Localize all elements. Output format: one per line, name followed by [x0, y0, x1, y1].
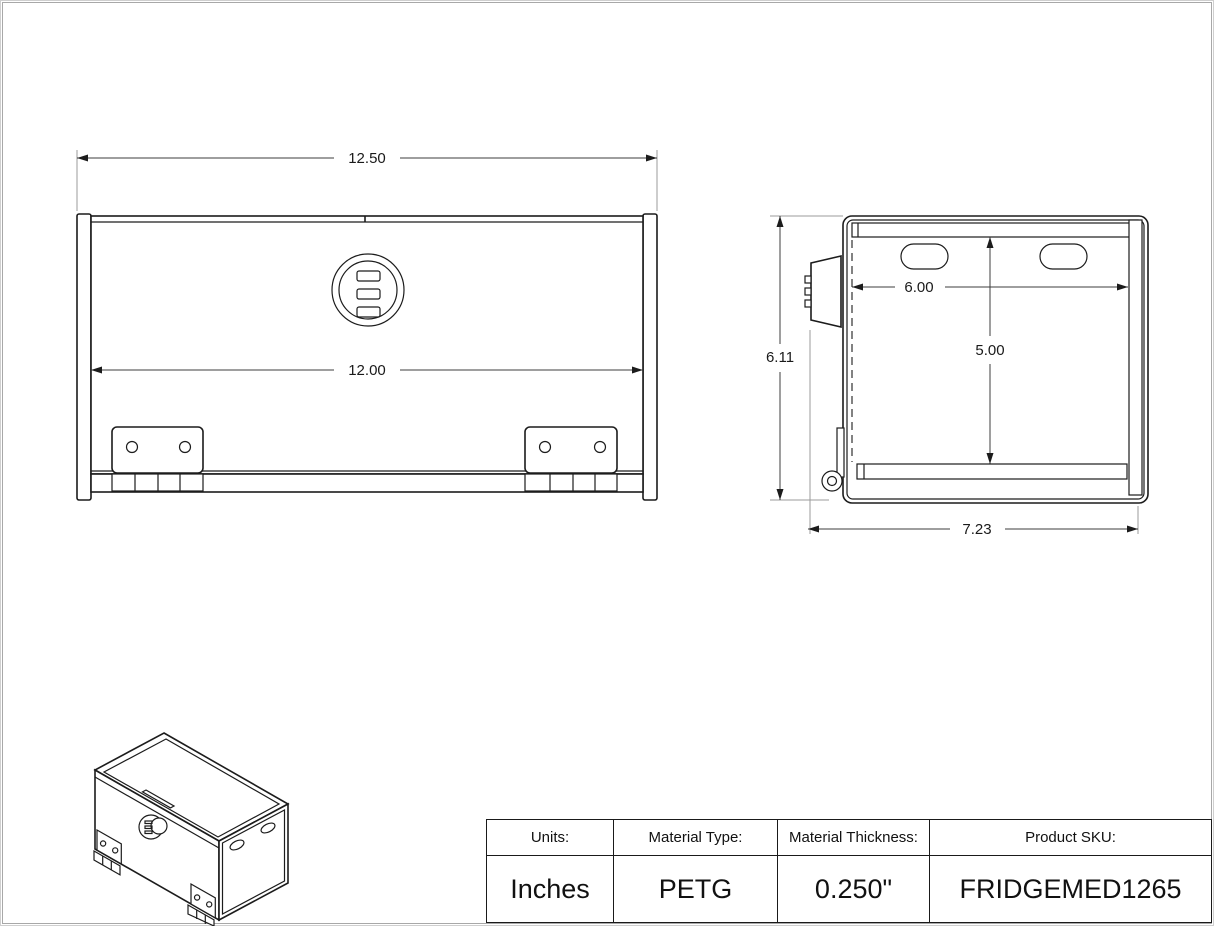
title-block-value-material: PETG — [614, 856, 778, 923]
front-lock — [332, 254, 404, 326]
title-block-header-thickness: Material Thickness: — [778, 820, 930, 856]
side-slot-left — [901, 244, 948, 269]
title-block-header-material: Material Type: — [614, 820, 778, 856]
dim-depth: 7.23 — [808, 521, 1138, 538]
side-bottom-strip — [857, 464, 1127, 479]
drawing-sheet: 12.50 — [0, 0, 1214, 926]
cad-drawing-canvas: 12.50 — [0, 0, 1214, 926]
front-left-rail — [77, 214, 91, 500]
dim-overall-width: 12.50 — [77, 150, 657, 167]
title-block-header-sku: Product SKU: — [930, 820, 1212, 856]
front-view: 12.50 — [77, 150, 657, 500]
title-block-header-units: Units: — [487, 820, 614, 856]
side-view: 6.11 6.00 — [766, 216, 1148, 538]
side-hinge — [822, 428, 844, 491]
front-hinge-right — [525, 427, 617, 491]
dim-label-height: 6.11 — [766, 349, 794, 366]
title-block: Units: Material Type: Material Thickness… — [486, 819, 1212, 923]
side-slot-right — [1040, 244, 1087, 269]
front-right-rail — [643, 214, 657, 500]
title-block-value-sku: FRIDGEMED1265 — [930, 856, 1212, 923]
side-top-strip — [852, 223, 1137, 237]
dim-label-inner-width: 12.00 — [348, 362, 386, 379]
side-right-strip — [1129, 220, 1142, 495]
front-hinge-left — [112, 427, 203, 491]
dim-label-top-width: 6.00 — [904, 279, 933, 296]
dim-height: 6.11 — [766, 216, 794, 500]
side-latch — [805, 256, 841, 327]
dim-label-depth: 7.23 — [962, 521, 991, 538]
side-body-outer — [843, 216, 1148, 503]
dim-label-inner-height: 5.00 — [975, 342, 1004, 359]
title-block-value-thickness: 0.250" — [778, 856, 930, 923]
dim-label-overall-width: 12.50 — [348, 150, 386, 167]
title-block-value-units: Inches — [487, 856, 614, 923]
isometric-view — [94, 733, 288, 926]
